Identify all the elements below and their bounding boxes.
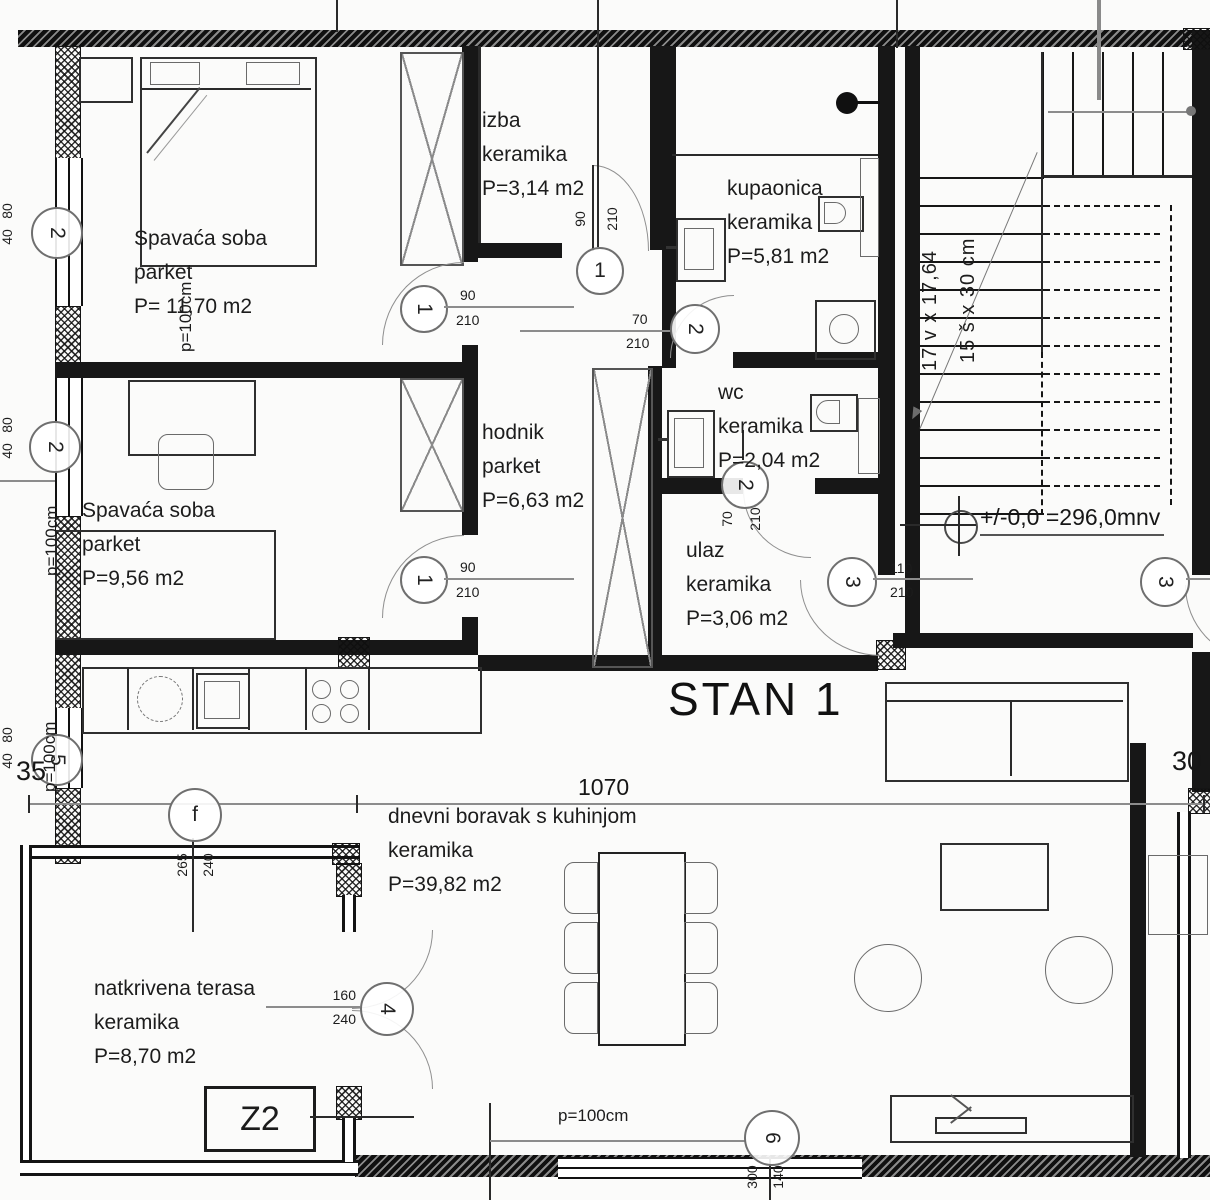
room-label-wc: wc keramika P=2,04 m2 — [718, 376, 820, 478]
terrace-wall-right-a — [342, 895, 356, 932]
parapet-label-living: p=100cm — [558, 1106, 628, 1126]
wall-bedroom2-bottom — [55, 640, 478, 655]
door-dim-h: 240 — [314, 1012, 356, 1026]
stairs-center-dash — [1041, 352, 1043, 515]
counter-divider — [368, 667, 370, 730]
riser-dot — [836, 92, 858, 114]
dining-chair — [684, 982, 718, 1034]
window-dim-h: 40 — [0, 222, 14, 252]
stair-tread-dash — [1044, 485, 1160, 487]
marker-glyph: 1 — [412, 574, 436, 586]
door-dim-h: 210 — [626, 336, 649, 350]
tv — [935, 1117, 1027, 1134]
bath-sink-tap — [666, 246, 678, 249]
pouf — [1045, 936, 1113, 1004]
room-name: Spavaća soba — [134, 222, 267, 256]
stairs-center-line — [1041, 52, 1043, 352]
left-edge-line — [0, 480, 55, 482]
window-marker-living: 6 — [744, 1110, 800, 1166]
door-marker-bathroom: 2 — [670, 304, 720, 354]
coffee-table — [940, 843, 1049, 911]
terrace-wall-top — [20, 845, 360, 859]
room-name: dnevni boravak s kuhinjom — [388, 800, 637, 834]
door-dim-h: 210 — [456, 585, 479, 599]
living-window — [558, 1157, 862, 1179]
pantry-door-arc — [593, 165, 649, 251]
pillow — [150, 62, 200, 85]
bath-divider-line — [672, 154, 878, 156]
terrace-wall-bottom — [20, 1160, 358, 1176]
marker-glyph: f — [192, 803, 198, 827]
wc-sink-tap — [658, 438, 669, 441]
dim-line — [444, 306, 574, 308]
stove-burner — [340, 680, 359, 699]
room-finish: parket — [482, 450, 584, 484]
parapet-label-bedroom2: p=100cm — [42, 506, 62, 576]
dining-chair — [564, 922, 598, 974]
stove-burner — [340, 704, 359, 723]
level-marker-text: +/-0,0 =296,0mnv — [980, 504, 1164, 536]
dining-chair — [564, 982, 598, 1034]
terrace-hatch-door-bottom — [336, 1086, 362, 1120]
window-dim-h: 40 — [0, 746, 14, 776]
dim-line — [1186, 578, 1210, 580]
level-marker-hline — [900, 524, 976, 526]
door-dim-w: 90 — [460, 288, 476, 302]
wall-hall-bottom — [478, 655, 878, 671]
bath-sink-basin — [684, 228, 714, 270]
wc-sink-basin — [674, 418, 704, 468]
window-dim-w: 265 — [175, 847, 189, 883]
door-dim-h: 210 — [456, 313, 479, 327]
sofa-back-line — [887, 700, 1123, 702]
door-dim-h: 210 — [605, 205, 619, 233]
stairs-risers-label: 17 v x 17,64 — [919, 250, 942, 371]
zone-leader-line — [310, 1116, 414, 1118]
door-dim-w: 70 — [632, 312, 648, 326]
marker-glyph: 2 — [733, 479, 757, 491]
washing-machine-drum — [829, 314, 859, 344]
oven-inner — [204, 681, 240, 719]
stairs-handrail-post — [1186, 106, 1196, 116]
room-label-bathroom: kupaonica keramika P=5,81 m2 — [727, 172, 829, 274]
boiler — [858, 398, 880, 474]
room-finish: keramika — [718, 410, 820, 444]
room-finish: keramika — [686, 568, 788, 602]
room-area: P=3,14 m2 — [482, 172, 584, 206]
stairs-upper-edge — [1042, 175, 1192, 178]
room-area: P=3,06 m2 — [686, 602, 788, 636]
kitchen-hatch-pillar — [338, 637, 370, 669]
window-marker-left-mid: 2 — [29, 421, 81, 473]
room-label-bedroom1: Spavaća soba parket P= 11,70 m2 — [134, 222, 267, 324]
sofa — [885, 682, 1129, 782]
door-dim-w: 90 — [460, 560, 476, 574]
zone-box: Z2 — [204, 1086, 316, 1152]
wardrobe-bedroom1 — [400, 52, 464, 266]
room-finish: parket — [82, 528, 215, 562]
stairs-upper-flight — [1042, 52, 1192, 176]
marker-glyph: 1 — [412, 303, 436, 315]
level-marker-vline — [958, 496, 960, 556]
window-dim-h: 40 — [0, 436, 14, 466]
room-area: P=8,70 m2 — [94, 1040, 255, 1074]
wall-stair-left — [905, 46, 920, 633]
zone-label: Z2 — [240, 1100, 280, 1139]
terrace-wall-right-b — [342, 1118, 356, 1162]
door-marker-bedroom2: 1 — [400, 556, 448, 604]
room-finish: keramika — [727, 206, 829, 240]
wall-pantry-bottom — [478, 243, 562, 258]
counter-divider — [192, 667, 194, 730]
wall-pantry-left — [478, 46, 481, 246]
room-name: Spavaća soba — [82, 494, 215, 528]
stairs-handrail — [1048, 111, 1192, 113]
marker-glyph: 2 — [43, 441, 67, 453]
door-dim-h: 210 — [748, 504, 762, 534]
pantry-door-leaf — [592, 165, 594, 251]
wall-left-seg1 — [55, 46, 81, 160]
corner-hatch-tr — [1183, 28, 1210, 50]
stair-tread-dash — [1044, 457, 1160, 459]
room-area: P=39,82 m2 — [388, 868, 637, 902]
marker-glyph: 2 — [45, 227, 69, 239]
room-area: P=5,81 m2 — [727, 240, 829, 274]
room-finish: keramika — [388, 834, 637, 868]
room-name: izba — [482, 104, 584, 138]
parapet-label-kitchen: p=100cm — [40, 722, 60, 792]
door-dim-h: 210 — [890, 585, 913, 599]
stairs-riser-line — [1097, 0, 1101, 100]
stair-tread-dash — [1044, 401, 1160, 403]
stair-tread-dash — [1044, 289, 1160, 291]
door-dim-w: 70 — [720, 506, 734, 532]
dim-tick — [1203, 795, 1205, 813]
door-marker-stair-right: 3 — [1140, 557, 1190, 607]
nightstand — [79, 57, 133, 103]
dim-line — [873, 578, 973, 580]
wall-dim-right: 30 — [1172, 746, 1202, 777]
counter-divider — [127, 667, 129, 730]
pillow — [246, 62, 300, 85]
dim-line — [520, 330, 670, 332]
room-label-hallway: hodnik parket P=6,63 m2 — [482, 416, 584, 518]
riser-line — [856, 101, 880, 104]
stair-tread-dash — [1044, 373, 1160, 375]
sofa-cushion-line — [1010, 702, 1012, 776]
dim-line — [266, 1006, 360, 1008]
marker-glyph: 6 — [760, 1132, 784, 1144]
marker-glyph: 4 — [375, 1003, 399, 1015]
stove-burner — [312, 680, 331, 699]
door-marker-terrace: 4 — [360, 982, 414, 1036]
dim-line — [444, 578, 574, 580]
counter-divider — [305, 667, 307, 730]
window-dim-h: 240 — [201, 847, 215, 883]
door-dim-w: 110 — [890, 561, 912, 575]
stair-tread-dash — [1044, 205, 1160, 207]
marker-glyph: 1 — [594, 259, 606, 283]
axis-line-top — [336, 0, 338, 32]
terrace-wall-left — [20, 845, 32, 1175]
wall-top — [18, 30, 1210, 47]
room-label-entry: ulaz keramika P=3,06 m2 — [686, 534, 788, 636]
room-finish: parket — [134, 256, 267, 290]
room-name: kupaonica — [727, 172, 829, 206]
door-marker-bedroom1: 1 — [400, 285, 448, 333]
stair-tread-dash — [1044, 233, 1160, 235]
stairs-right-dash — [1170, 205, 1172, 505]
dining-chair — [684, 862, 718, 914]
terrace-hatch-tr — [332, 843, 360, 865]
wall-right-hatch — [1188, 788, 1210, 814]
terrace-window-axis — [192, 838, 194, 932]
room-name: hodnik — [482, 416, 584, 450]
stair-tread-dash — [1044, 261, 1160, 263]
window-marker-terrace: f — [168, 788, 222, 842]
bed-headline — [142, 88, 311, 90]
marker-glyph: 3 — [1153, 576, 1177, 588]
room-area: P=2,04 m2 — [718, 444, 820, 478]
level-marker-icon — [944, 510, 978, 544]
living-axis-line — [489, 1103, 491, 1200]
room-area: P=9,56 m2 — [82, 562, 215, 596]
stair-tread-dash — [1044, 317, 1160, 319]
pantry-door-axis — [597, 0, 599, 247]
door-dim-w: 90 — [573, 205, 587, 233]
door-marker-pantry: 1 — [576, 247, 624, 295]
room-area: P=6,63 m2 — [482, 484, 584, 518]
wall-pantry-right — [650, 46, 676, 250]
room-label-living: dnevni boravak s kuhinjom keramika P=39,… — [388, 800, 637, 902]
dining-chair — [684, 922, 718, 974]
wardrobe-hall — [592, 368, 653, 668]
kitchen-sink — [137, 676, 183, 722]
terrace-hatch-door-top — [336, 863, 362, 897]
dim-tick — [356, 795, 358, 813]
marker-glyph: 3 — [840, 576, 864, 588]
stair-tread-dash — [1044, 429, 1160, 431]
wall-between-bedrooms — [55, 362, 462, 378]
parapet-line-bottom — [490, 1140, 746, 1142]
apartment-title: STAN 1 — [668, 672, 844, 726]
wardrobe-bedroom2 — [400, 378, 464, 512]
room-area: P= 11,70 m2 — [134, 290, 267, 324]
wall-shaft — [878, 46, 895, 575]
stair-tread-dash — [1044, 345, 1160, 347]
stairs-treads-label: 15 š x 30 cm — [957, 238, 980, 363]
room-name: natkrivena terasa — [94, 972, 255, 1006]
window-marker-left-upper: 2 — [31, 207, 83, 259]
door-marker-entry: 3 — [827, 557, 877, 607]
wall-landing-bottom — [893, 633, 1193, 648]
room-label-terrace: natkrivena terasa keramika P=8,70 m2 — [94, 972, 255, 1074]
parapet-label-bedroom1: p=100cm — [176, 282, 196, 352]
window-dim-w: 300 — [745, 1159, 759, 1195]
room-label-bedroom2: Spavaća soba parket P=9,56 m2 — [82, 494, 215, 596]
wall-wc-entry-b — [815, 478, 880, 494]
room-name: wc — [718, 376, 820, 410]
side-chair — [1148, 855, 1208, 935]
shower-column — [860, 158, 879, 257]
axis-line-top2 — [896, 0, 898, 48]
door-dim-w: 160 — [318, 988, 356, 1002]
pouf — [854, 944, 922, 1012]
dim-tick — [28, 795, 30, 813]
room-name: ulaz — [686, 534, 788, 568]
room-label-pantry: izba keramika P=3,14 m2 — [482, 104, 584, 206]
room-finish: keramika — [94, 1006, 255, 1040]
floor-plan-canvas: 17 v x 17,64 15 š x 30 cm +/-0,0 =296,0m… — [0, 0, 1210, 1200]
wall-bedrooms-right-b — [462, 345, 478, 535]
marker-glyph: 2 — [683, 323, 707, 335]
desk-chair — [158, 434, 214, 490]
overall-dimension: 1070 — [578, 774, 629, 801]
stove-burner — [312, 704, 331, 723]
room-finish: keramika — [482, 138, 584, 172]
window-dim-h: 140 — [771, 1159, 785, 1195]
wall-bedrooms-right-a — [462, 46, 478, 262]
